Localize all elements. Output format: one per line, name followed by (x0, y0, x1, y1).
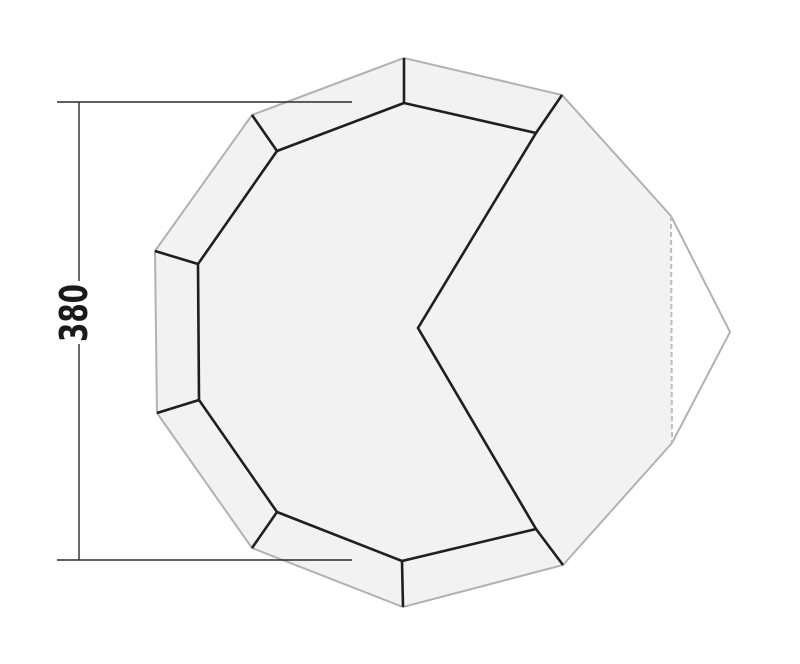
tent-floorplan-diagram: 380 (0, 0, 800, 664)
entrance-dashed-edge (671, 216, 672, 443)
door-flap-fill (671, 216, 730, 443)
tent-floorplan-page: 380 (0, 0, 800, 664)
seam-line (402, 561, 403, 607)
groundsheet-fill (155, 58, 672, 607)
dimension-label: 380 (52, 284, 96, 342)
